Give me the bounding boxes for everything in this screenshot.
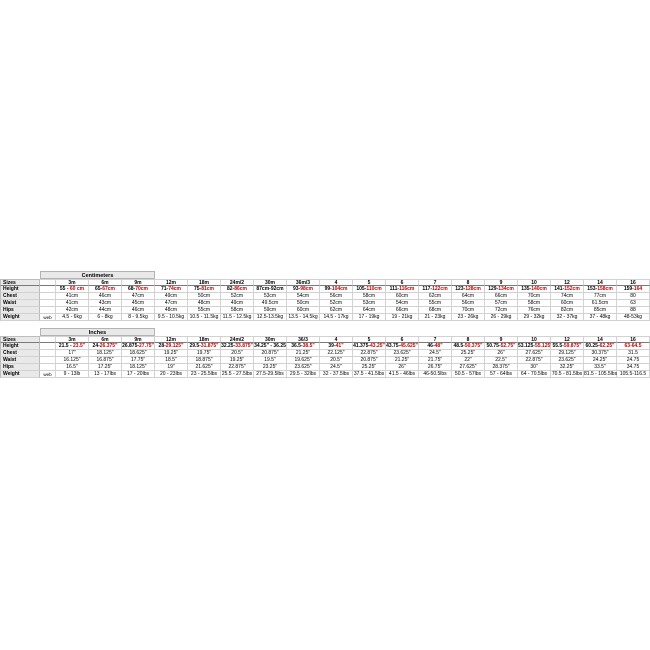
weight-cell: 29.5 - 32lbs xyxy=(287,371,320,378)
row-label-hips: Hips xyxy=(0,364,40,371)
weight-cell: 105.5-116.5 xyxy=(617,371,650,378)
weight-cell: 48-53kg xyxy=(617,314,650,321)
height-range-end-highlight: 45.625" xyxy=(400,343,418,349)
chest-cell: 64cm xyxy=(452,293,485,300)
height-cell: 60.25-62.25" xyxy=(584,343,617,350)
height-range-end-highlight: 48" xyxy=(435,343,443,349)
chest-cell: 25.25" xyxy=(452,350,485,357)
height-range-start: 28- xyxy=(159,343,166,349)
size-header-cell: 6 xyxy=(386,279,419,286)
weight-cell: 10.5 - 11.5kg xyxy=(188,314,221,321)
chest-cell: 27.625" xyxy=(518,350,551,357)
height-range-end-highlight: 122cm xyxy=(432,286,448,292)
waist-cell: 22.875" xyxy=(518,357,551,364)
hips-cell: 48cm xyxy=(155,307,188,314)
size-header-cell: 12 xyxy=(551,279,584,286)
table-title: Centimeters xyxy=(40,271,155,279)
chest-cell: 66cm xyxy=(485,293,518,300)
chest-cell: 23.625" xyxy=(386,350,419,357)
height-cell: 41.375-43.25" xyxy=(353,343,386,350)
size-header-cell: 7 xyxy=(419,336,452,343)
height-range-start: 36.5- xyxy=(291,343,302,349)
hips-cell: 64cm xyxy=(353,307,386,314)
title-row-filler xyxy=(155,328,650,336)
row-label-chest: Chest xyxy=(0,293,40,300)
height-cell: 39-41" xyxy=(320,343,353,350)
hips-cell: 28.375" xyxy=(485,364,518,371)
weight-cell: 37 - 48kg xyxy=(584,314,617,321)
hips-cell: 25.25" xyxy=(353,364,386,371)
height-cell: 29.5-31.875" xyxy=(188,343,221,350)
chest-cell: 21.25" xyxy=(287,350,320,357)
waist-cell: 58cm xyxy=(518,300,551,307)
chest-cell: 26" xyxy=(485,350,518,357)
web-note-cell xyxy=(40,336,56,343)
height-cell: 36.5-38.5" xyxy=(287,343,320,350)
height-cell: 71-74cm xyxy=(155,286,188,293)
height-range-end-highlight: 164 xyxy=(634,286,642,292)
height-cell: 32.25-33.875" xyxy=(221,343,254,350)
chest-cell: 41cm xyxy=(56,293,89,300)
weight-cell: 27.5-29.5lbs xyxy=(254,371,287,378)
size-header-cell: 36m/3 xyxy=(287,279,320,286)
size-header-cell: 30m xyxy=(254,279,287,286)
height-range-start: 43.75- xyxy=(386,343,400,349)
weight-cell: 41.5 - 46lbs xyxy=(386,371,419,378)
hips-cell: 82cm xyxy=(551,307,584,314)
waist-cell: 43cm xyxy=(89,300,122,307)
height-range-start: 50.75- xyxy=(486,343,500,349)
waist-cell: 21.75" xyxy=(419,357,452,364)
weight-cell: 17 - 20lbs xyxy=(122,371,155,378)
row-label-sizes: Sizes xyxy=(0,336,40,343)
hips-cell: 33.5" xyxy=(584,364,617,371)
height-cell: 65-67cm xyxy=(89,286,122,293)
web-note-cell xyxy=(40,279,56,286)
height-range-start: 41.375- xyxy=(353,343,370,349)
chest-cell: 22.125" xyxy=(320,350,353,357)
weight-cell: 81.5 - 105.5lbs xyxy=(584,371,617,378)
hips-cell: 76cm xyxy=(518,307,551,314)
chest-cell: 58cm xyxy=(353,293,386,300)
size-header-cell: 6m xyxy=(89,336,122,343)
hips-cell: 55cm xyxy=(188,307,221,314)
height-range-end-highlight: 86cm xyxy=(234,286,247,292)
size-header-cell: 6m xyxy=(89,279,122,286)
web-note-cell xyxy=(40,357,56,364)
weight-cell: 37.5 - 41.5lbs xyxy=(353,371,386,378)
height-range-start: 48.5- xyxy=(453,343,464,349)
hips-cell: 85cm xyxy=(584,307,617,314)
waist-cell: 21.25" xyxy=(386,357,419,364)
height-range-end-highlight: 55.125" xyxy=(535,343,553,349)
size-header-cell: 5 xyxy=(353,279,386,286)
height-range-end-highlight: 63-64.5 xyxy=(625,343,642,349)
height-cell: 24-26.375" xyxy=(89,343,122,350)
hips-cell: 23.25" xyxy=(254,364,287,371)
weight-cell: 4.5 - 6kg xyxy=(56,314,89,321)
height-range-start: 34.25" - 36.25 xyxy=(254,343,286,349)
chest-cell: 30.375" xyxy=(584,350,617,357)
waist-cell: 24.75 xyxy=(617,357,650,364)
chest-cell: 54cm xyxy=(287,293,320,300)
height-cell: 123-128cm xyxy=(452,286,485,293)
size-header-cell: 3m xyxy=(56,336,89,343)
height-range-end-highlight: 74cm xyxy=(168,286,181,292)
height-range-end-highlight: 52.75" xyxy=(501,343,516,349)
waist-cell: 49cm xyxy=(221,300,254,307)
height-range-end-highlight: 116cm xyxy=(399,286,414,292)
chest-cell: 56cm xyxy=(320,293,353,300)
waist-cell: 18.875" xyxy=(188,357,221,364)
size-header-cell: 14 xyxy=(584,336,617,343)
height-range-start: 29.5- xyxy=(189,343,200,349)
size-header-cell: 12 xyxy=(551,336,584,343)
height-range-end-highlight: 62.25" xyxy=(600,343,615,349)
hips-cell: 70cm xyxy=(452,307,485,314)
height-range-end-highlight: 134cm xyxy=(498,286,514,292)
weight-cell: 11.5 - 12.5kg xyxy=(221,314,254,321)
size-header-cell: 9 xyxy=(485,279,518,286)
hips-cell: 68cm xyxy=(419,307,452,314)
chest-cell: 47cm xyxy=(122,293,155,300)
title-row-spacer xyxy=(0,328,40,336)
hips-cell: 27.625" xyxy=(452,364,485,371)
chest-cell: 29.125" xyxy=(551,350,584,357)
height-range-start: 111- xyxy=(390,286,399,292)
hips-cell: 19" xyxy=(155,364,188,371)
weight-cell: 50.5 - 57lbs xyxy=(452,371,485,378)
chest-cell: 18.625" xyxy=(122,350,155,357)
height-range-end-highlight: 33.875" xyxy=(235,343,253,349)
height-range-end-highlight: 67cm xyxy=(102,286,115,292)
height-range-start: 21.5 - xyxy=(59,343,73,349)
height-range-start: 46- xyxy=(427,343,434,349)
chest-cell: 77cm xyxy=(584,293,617,300)
size-header-cell: 24m/2 xyxy=(221,279,254,286)
waist-cell: 20.5" xyxy=(320,357,353,364)
height-cell: 129-134cm xyxy=(485,286,518,293)
title-row-spacer xyxy=(0,271,40,279)
size-header-cell: 9m xyxy=(122,336,155,343)
chest-cell: 22.875" xyxy=(353,350,386,357)
size-header-cell: 4 xyxy=(320,279,353,286)
web-note-cell xyxy=(40,300,56,307)
size-header-cell: 3m xyxy=(56,279,89,286)
hips-cell: 88 xyxy=(617,307,650,314)
height-cell: 68-70cm xyxy=(122,286,155,293)
weight-cell: 70.5 - 81.5lbs xyxy=(551,371,584,378)
height-range-end-highlight: 110cm xyxy=(366,286,381,292)
height-cell: 55 - 60 cm xyxy=(56,286,89,293)
waist-cell: 19.25" xyxy=(221,357,254,364)
row-label-height: Height xyxy=(0,286,40,293)
weight-cell: 20 - 23lbs xyxy=(155,371,188,378)
height-range-end-highlight: 70cm xyxy=(135,286,148,292)
hips-cell: 16.5" xyxy=(56,364,89,371)
height-cell: 75-81cm xyxy=(188,286,221,293)
height-range-start: 55 - xyxy=(60,286,70,292)
height-range-start: 141- xyxy=(554,286,564,292)
chest-cell: 20.875" xyxy=(254,350,287,357)
waist-cell: 23.625" xyxy=(551,357,584,364)
height-range-end-highlight: 50.375" xyxy=(465,343,483,349)
chest-cell: 80 xyxy=(617,293,650,300)
height-cell: 46-48" xyxy=(419,343,452,350)
height-range-start: 135- xyxy=(521,286,531,292)
chest-cell: 19.25" xyxy=(155,350,188,357)
height-range-end-highlight: 38.5" xyxy=(303,343,315,349)
height-range-end-highlight: 27.75" xyxy=(139,343,154,349)
weight-cell: 9.5 - 10.5kg xyxy=(155,314,188,321)
height-range-end-highlight: 43.25" xyxy=(370,343,385,349)
size-header-cell: 16 xyxy=(617,336,650,343)
height-range-end-highlight: 26.375" xyxy=(100,343,118,349)
hips-cell: 26.75" xyxy=(419,364,452,371)
height-range-start: 26.875- xyxy=(122,343,139,349)
height-cell: 111-116cm xyxy=(386,286,419,293)
waist-cell: 47cm xyxy=(155,300,188,307)
waist-cell: 16.875" xyxy=(89,357,122,364)
height-range-start: 159- xyxy=(624,286,634,292)
weight-cell: 6 - 8kg xyxy=(89,314,122,321)
height-cell: 55.5-59.875" xyxy=(551,343,584,350)
hips-cell: 26" xyxy=(386,364,419,371)
waist-cell: 41cm xyxy=(56,300,89,307)
waist-cell: 17.75" xyxy=(122,357,155,364)
table-title: Inches xyxy=(40,328,155,336)
height-range-start: 55.5- xyxy=(552,343,563,349)
size-header-cell: 9 xyxy=(485,336,518,343)
height-range-start: 87cm-92cm xyxy=(256,286,283,292)
web-note-cell xyxy=(40,286,56,293)
waist-cell: 54cm xyxy=(386,300,419,307)
chest-cell: 52cm xyxy=(221,293,254,300)
size-header-cell: 8 xyxy=(452,279,485,286)
web-note-cell xyxy=(40,364,56,371)
weight-cell: 46-50.5lbs xyxy=(419,371,452,378)
waist-cell: 20.875" xyxy=(353,357,386,364)
height-range-start: 129- xyxy=(488,286,498,292)
hips-cell: 60cm xyxy=(287,307,320,314)
waist-cell: 50cm xyxy=(287,300,320,307)
weight-cell: 23 - 26kg xyxy=(452,314,485,321)
row-label-hips: Hips xyxy=(0,307,40,314)
waist-cell: 24.25" xyxy=(584,357,617,364)
title-row-filler xyxy=(155,271,650,279)
waist-cell: 57cm xyxy=(485,300,518,307)
size-header-cell: 36/3 xyxy=(287,336,320,343)
size-header-cell: 18m xyxy=(188,279,221,286)
row-label-waist: Waist xyxy=(0,357,40,364)
size-header-cell: 6 xyxy=(386,336,419,343)
hips-cell: 24.5" xyxy=(320,364,353,371)
weight-cell: 29 - 32kg xyxy=(518,314,551,321)
waist-cell: 18.5" xyxy=(155,357,188,364)
height-cell: 28-29.125" xyxy=(155,343,188,350)
hips-cell: 32.25" xyxy=(551,364,584,371)
height-range-end-highlight: 152cm xyxy=(564,286,580,292)
waist-cell: 19.5" xyxy=(254,357,287,364)
chest-cell: 50cm xyxy=(188,293,221,300)
weight-cell: 32 - 37kg xyxy=(551,314,584,321)
height-cell: 63-64.5 xyxy=(617,343,650,350)
hips-cell: 21.625" xyxy=(188,364,221,371)
centimeters-table: CentimetersSizes3m6m9m12m18m24m/230m36m/… xyxy=(0,271,650,321)
weight-cell: 17 - 19kg xyxy=(353,314,386,321)
chest-cell: 24.5" xyxy=(419,350,452,357)
web-note-cell: web xyxy=(40,314,56,321)
size-chart-page: { "page": { "background": "#ffffff" }, "… xyxy=(0,0,650,650)
waist-cell: 19.625" xyxy=(287,357,320,364)
chest-cell: 17" xyxy=(56,350,89,357)
chest-cell: 19.75" xyxy=(188,350,221,357)
height-range-start: 53.125- xyxy=(518,343,535,349)
weight-cell: 13.5 - 14.5kg xyxy=(287,314,320,321)
height-range-start: 39- xyxy=(328,343,335,349)
size-header-cell: 30m xyxy=(254,336,287,343)
weight-cell: 23 - 25.5lbs xyxy=(188,371,221,378)
height-range-start: 117- xyxy=(422,286,432,292)
web-note-cell: web xyxy=(40,371,56,378)
hips-cell: 17.25" xyxy=(89,364,122,371)
hips-cell: 22.875" xyxy=(221,364,254,371)
web-note-cell xyxy=(40,343,56,350)
waist-cell: 49.5cm xyxy=(254,300,287,307)
row-label-weight: Weight xyxy=(0,314,40,321)
hips-cell: 59cm xyxy=(254,307,287,314)
hips-cell: 66cm xyxy=(386,307,419,314)
height-range-start: 123- xyxy=(455,286,465,292)
waist-cell: 45cm xyxy=(122,300,155,307)
chest-cell: 31.5 xyxy=(617,350,650,357)
weight-cell: 57 - 64lbs xyxy=(485,371,518,378)
waist-cell: 55cm xyxy=(419,300,452,307)
height-range-end-highlight: 59.875" xyxy=(564,343,582,349)
inches-table: InchesSizes3m6m9m12m18m24m/230m36/345678… xyxy=(0,328,650,378)
waist-cell: 22" xyxy=(452,357,485,364)
web-note-cell xyxy=(40,307,56,314)
height-range-start: 99- xyxy=(325,286,332,292)
size-header-cell: 9m xyxy=(122,279,155,286)
height-cell: 135-140cm xyxy=(518,286,551,293)
row-label-sizes: Sizes xyxy=(0,279,40,286)
height-range-start: 60.25- xyxy=(585,343,599,349)
hips-cell: 72cm xyxy=(485,307,518,314)
size-header-cell: 18m xyxy=(188,336,221,343)
height-cell: 87cm-92cm xyxy=(254,286,287,293)
weight-cell: 13 - 17lbs xyxy=(89,371,122,378)
height-cell: 48.5-50.375" xyxy=(452,343,485,350)
weight-cell: 8 - 9.5kg xyxy=(122,314,155,321)
height-range-end-highlight: 31.875" xyxy=(201,343,219,349)
height-cell: 34.25" - 36.25 xyxy=(254,343,287,350)
web-note-cell xyxy=(40,350,56,357)
hips-cell: 62cm xyxy=(320,307,353,314)
height-range-start: 105- xyxy=(356,286,366,292)
chest-cell: 46cm xyxy=(89,293,122,300)
size-header-cell: 10 xyxy=(518,279,551,286)
size-header-cell: 8 xyxy=(452,336,485,343)
height-range-end-highlight: 81cm xyxy=(201,286,214,292)
height-cell: 105-110cm xyxy=(353,286,386,293)
waist-cell: 61.5cm xyxy=(584,300,617,307)
height-range-end-highlight: 104cm xyxy=(332,286,348,292)
height-range-end-highlight: 29.125" xyxy=(166,343,184,349)
weight-cell: 26 - 29kg xyxy=(485,314,518,321)
weight-cell: 12.5-13.5kg xyxy=(254,314,287,321)
hips-cell: 23.625" xyxy=(287,364,320,371)
weight-cell: 64 - 70.5lbs xyxy=(518,371,551,378)
row-label-height: Height xyxy=(0,343,40,350)
height-cell: 50.75-52.75" xyxy=(485,343,518,350)
height-cell: 82-86cm xyxy=(221,286,254,293)
hips-cell: 46cm xyxy=(122,307,155,314)
height-cell: 21.5 - 23.5" xyxy=(56,343,89,350)
height-cell: 159-164 xyxy=(617,286,650,293)
size-header-cell: 7 xyxy=(419,279,452,286)
height-range-start: 32.25- xyxy=(221,343,235,349)
waist-cell: 52cm xyxy=(320,300,353,307)
chest-cell: 18.125" xyxy=(89,350,122,357)
weight-cell: 19 - 21kg xyxy=(386,314,419,321)
height-cell: 43.75-45.625" xyxy=(386,343,419,350)
hips-cell: 18.125" xyxy=(122,364,155,371)
hips-cell: 58cm xyxy=(221,307,254,314)
weight-cell: 9 - 13lb xyxy=(56,371,89,378)
weight-cell: 14.5 - 17kg xyxy=(320,314,353,321)
weight-cell: 32 - 37.5lbs xyxy=(320,371,353,378)
web-note-cell xyxy=(40,293,56,300)
weight-cell: 25.5 - 27.5lbs xyxy=(221,371,254,378)
height-range-end-highlight: 140cm xyxy=(531,286,547,292)
hips-cell: 44cm xyxy=(89,307,122,314)
chest-cell: 20.5" xyxy=(221,350,254,357)
waist-cell: 53cm xyxy=(353,300,386,307)
chest-cell: 53cm xyxy=(254,293,287,300)
row-label-chest: Chest xyxy=(0,350,40,357)
height-range-start: 24- xyxy=(93,343,100,349)
height-range-end-highlight: 158cm xyxy=(597,286,613,292)
size-header-cell: 16 xyxy=(617,279,650,286)
chest-cell: 70cm xyxy=(518,293,551,300)
size-header-cell: 24m/2 xyxy=(221,336,254,343)
row-label-weight: Weight xyxy=(0,371,40,378)
size-header-cell: 12m xyxy=(155,336,188,343)
height-cell: 53.125-55.125" xyxy=(518,343,551,350)
height-range-end-highlight: 60 cm xyxy=(70,286,84,292)
waist-cell: 22.5" xyxy=(485,357,518,364)
size-header-cell: 10 xyxy=(518,336,551,343)
height-range-start: 153- xyxy=(587,286,597,292)
chest-cell: 49cm xyxy=(155,293,188,300)
height-cell: 99-104cm xyxy=(320,286,353,293)
waist-cell: 63 xyxy=(617,300,650,307)
waist-cell: 60cm xyxy=(551,300,584,307)
hips-cell: 34.75 xyxy=(617,364,650,371)
weight-cell: 21 - 23kg xyxy=(419,314,452,321)
waist-cell: 48cm xyxy=(188,300,221,307)
size-header-cell: 12m xyxy=(155,279,188,286)
height-range-end-highlight: 41" xyxy=(336,343,344,349)
height-cell: 153-158cm xyxy=(584,286,617,293)
size-header-cell: 14 xyxy=(584,279,617,286)
height-cell: 93-98cm xyxy=(287,286,320,293)
height-cell: 26.875-27.75" xyxy=(122,343,155,350)
waist-cell: 56cm xyxy=(452,300,485,307)
chest-cell: 62cm xyxy=(419,293,452,300)
hips-cell: 30" xyxy=(518,364,551,371)
